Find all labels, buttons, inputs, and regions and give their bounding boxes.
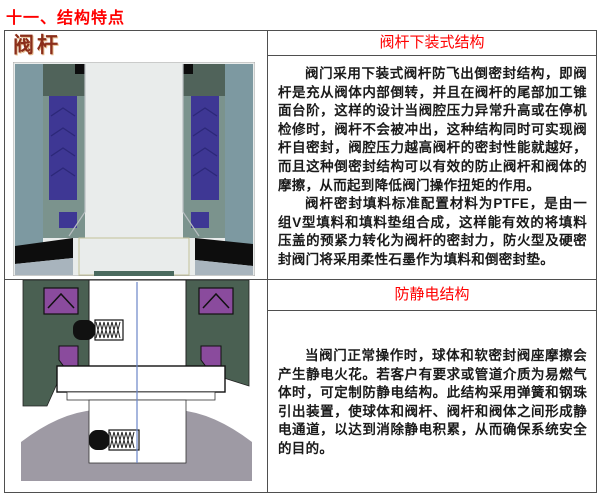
paragraph: 阀门采用下装式阀杆防飞出倒密封结构，即阀杆是充从阀体内部倒转，并且在阀杆的尾部加…	[278, 65, 587, 195]
section-body-antistatic: 当阀门正常操作时，球体和软密封阀座摩擦会产生静电火花。若客户有要求或管道介质为易…	[268, 311, 596, 459]
anti-static-diagram	[9, 280, 261, 488]
valve-stem-diagram	[13, 62, 255, 276]
cell-antistatic-text: 防静电结构 当阀门正常操作时，球体和软密封阀座摩擦会产生静电火花。若客户有要求或…	[268, 280, 596, 492]
spring-ball-device-lower	[89, 430, 139, 450]
cell-antistatic-diagram	[5, 280, 268, 492]
cell-stem-diagram: 阀杆	[5, 31, 268, 280]
paragraph: 当阀门正常操作时，球体和软密封阀座摩擦会产生静电火花。若客户有要求或管道介质为易…	[278, 347, 587, 459]
section-body-stem: 阀门采用下装式阀杆防飞出倒密封结构，即阀杆是充从阀体内部倒转，并且在阀杆的尾部加…	[268, 56, 596, 270]
paragraph: 阀杆密封填料标准配置材料为PTFE，是由一组V型填料和填料垫组合成，这样能有效的…	[278, 195, 587, 269]
section-header-stem: 阀杆下装式结构	[268, 31, 596, 56]
stem-base-strip	[94, 271, 174, 276]
page-title: 十一、结构特点	[6, 4, 125, 28]
spring-ball-device-upper	[73, 320, 123, 340]
content-table: 阀杆	[4, 30, 597, 493]
stem-flange	[57, 366, 225, 400]
cell-stem-text: 阀杆下装式结构 阀门采用下装式阀杆防飞出倒密封结构，即阀杆是充从阀体内部倒转，并…	[268, 31, 596, 280]
section-header-antistatic: 防静电结构	[268, 280, 596, 311]
stem-base-column	[79, 238, 189, 275]
stem-diagram-label: 阀杆	[5, 31, 267, 60]
document-page: 十一、结构特点 阀杆	[0, 0, 600, 495]
